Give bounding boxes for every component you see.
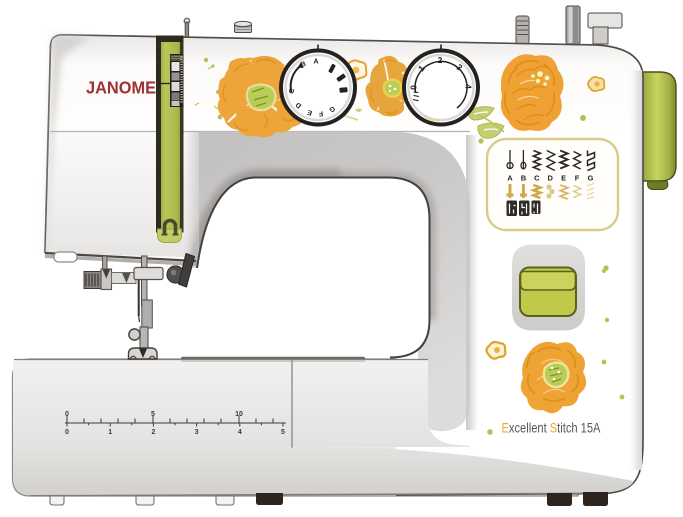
svg-text:2: 2 [438,55,443,65]
svg-text:3: 3 [195,429,199,436]
svg-text:D: D [547,174,553,183]
svg-text:E: E [561,174,566,183]
svg-text:0: 0 [65,411,69,418]
svg-text:1: 1 [108,429,112,436]
svg-text:B: B [521,174,527,183]
svg-text:5: 5 [151,411,155,418]
svg-text:A: A [507,174,513,183]
svg-text:2: 2 [151,429,155,436]
svg-text:JANOME: JANOME [86,78,156,98]
svg-text:G: G [587,174,593,183]
svg-text:0: 0 [409,85,419,90]
svg-text:F: F [575,174,580,183]
svg-text:A: A [313,59,318,66]
svg-text:C: C [534,174,540,183]
svg-text:0: 0 [65,429,69,436]
svg-text:5: 5 [281,429,285,436]
svg-text:Excellent Stitch 15A: Excellent Stitch 15A [502,420,602,436]
svg-text:4: 4 [238,429,242,436]
svg-text:10: 10 [235,411,243,418]
svg-text:4: 4 [463,84,473,89]
